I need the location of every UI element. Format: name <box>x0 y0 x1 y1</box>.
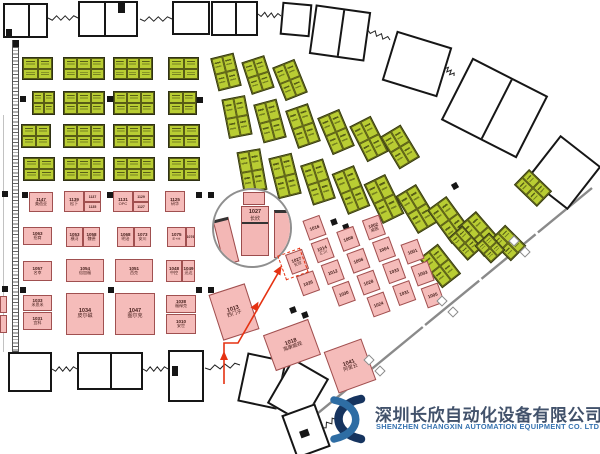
green-booth-block <box>210 53 242 92</box>
green-booth-cell <box>64 58 77 69</box>
pillar <box>2 191 8 197</box>
pillar <box>289 306 297 314</box>
green-booth-cell <box>169 158 184 169</box>
green-booth-cell <box>183 103 197 114</box>
green-booth-cell <box>141 92 154 103</box>
room-inner-wall <box>337 10 345 56</box>
booth-number: 1033 <box>389 267 400 275</box>
company-logo: 深圳长欣自动化设备有限公司 SHENZHEN CHANGXIN AUTOMATI… <box>322 392 600 454</box>
pillar <box>451 182 459 190</box>
green-booth-cell <box>77 136 90 147</box>
green-booth-cell <box>23 58 38 69</box>
green-booth-cell <box>77 92 90 103</box>
green-booth-cell <box>64 169 77 180</box>
green-booth-block <box>268 153 301 200</box>
green-booth-cell <box>91 69 104 80</box>
green-booth-cell <box>91 58 104 69</box>
magnified-neighbor-booth <box>213 217 240 266</box>
magnified-booth-divider <box>242 222 268 224</box>
green-booth-cell <box>169 103 183 114</box>
green-booth-cell <box>91 158 104 169</box>
green-booth-block <box>253 99 287 144</box>
exhibition-floorplan: 深圳长欣自动化设备有限公司 SHENZHEN CHANGXIN AUTOMATI… <box>0 0 600 454</box>
green-booth-block <box>285 103 321 149</box>
pink-booth: 1008 <box>336 226 360 252</box>
pink-booth: 1053横河 <box>66 227 83 247</box>
pink-booth: 1028 <box>356 270 380 296</box>
green-booth-cell <box>141 136 154 147</box>
room-inner-wall <box>481 79 513 139</box>
green-booth-cell <box>127 103 140 114</box>
pink-booth: 1058魏德 <box>83 227 100 247</box>
pink-booth: 1057名幸 <box>23 261 52 281</box>
green-booth-cell <box>36 136 50 147</box>
green-booth-cell <box>127 125 140 136</box>
barrier-diamond-marker <box>447 306 458 317</box>
green-booth-cell <box>114 158 127 169</box>
green-booth-block <box>317 109 355 155</box>
green-booth-cell <box>127 136 140 147</box>
green-booth-cell <box>127 169 140 180</box>
pink-booth: 1076 <box>186 227 195 247</box>
green-booth-cell <box>24 169 39 180</box>
green-booth-cell <box>139 69 152 80</box>
green-booth-cell <box>114 125 127 136</box>
perimeter-room <box>280 2 313 37</box>
booth-number: 1076 <box>187 235 195 239</box>
green-booth-block <box>23 157 55 181</box>
room-detail <box>118 3 125 13</box>
green-booth-block <box>63 124 105 148</box>
barrier-diamond-marker <box>374 365 385 376</box>
green-booth-cell <box>141 125 154 136</box>
green-booth-block <box>168 157 200 181</box>
green-booth-cell <box>91 125 104 136</box>
pink-booth: 1038福禄克 <box>166 295 196 313</box>
perimeter-room <box>382 31 453 98</box>
magnified-small-booth <box>243 192 265 205</box>
green-booth-cell <box>22 136 36 147</box>
green-booth-cell <box>184 58 199 69</box>
green-booth-cell <box>64 136 77 147</box>
green-booth-cell <box>23 69 38 80</box>
pillar <box>301 311 309 319</box>
green-booth-cell <box>64 92 77 103</box>
booth-number: 1030 <box>338 290 349 298</box>
expansion-joint-zigzag <box>205 363 240 370</box>
green-booth-cell <box>64 158 77 169</box>
perimeter-room <box>211 1 258 36</box>
pink-booth: 1051西克 <box>115 259 153 282</box>
green-booth-cell <box>184 158 199 169</box>
perimeter-room <box>78 1 138 37</box>
booth-number: 1024 <box>373 300 384 308</box>
pillar <box>330 218 338 226</box>
booth-name: 招商 <box>34 236 42 241</box>
booth-name: 汇川 <box>319 249 328 256</box>
green-booth-cell <box>114 136 127 147</box>
green-booth-block <box>168 57 199 80</box>
pink-booth: 1075E+H <box>167 227 186 247</box>
expansion-joint-zigzag <box>368 30 390 40</box>
perimeter-room <box>441 58 549 159</box>
perimeter-room <box>8 352 52 392</box>
pink-booth: 1016 <box>302 215 326 241</box>
pink-booth: 1147美蓓亚 <box>29 192 53 212</box>
expansion-joint-zigzag <box>52 367 77 371</box>
booth-name: 倍加福 <box>79 271 91 276</box>
green-booth-block <box>113 57 153 80</box>
pink-booth <box>0 296 7 313</box>
booth-name: 迅达 <box>185 271 193 276</box>
perimeter-room <box>77 352 143 390</box>
green-booth-cell <box>64 103 77 114</box>
green-booth-cell <box>33 103 44 114</box>
booth-number: 1129 <box>137 195 145 199</box>
green-booth-block <box>22 57 53 80</box>
magnified-highlight-booth: 1027长欣 <box>241 206 269 256</box>
booth-name: 西门子 <box>227 310 243 320</box>
booth-number: 1008 <box>343 235 354 243</box>
room-inner-wall <box>110 354 112 388</box>
green-booth-cell <box>39 169 54 180</box>
green-booth-cell <box>169 92 183 103</box>
booth-number: 1004 <box>378 245 389 253</box>
green-booth-cell <box>91 92 104 103</box>
booth-name: 威图 <box>370 226 379 233</box>
green-booth-cell <box>169 136 184 147</box>
green-booth-cell <box>169 69 184 80</box>
green-booth-block <box>241 55 274 95</box>
booth-name: 松下 <box>70 202 78 207</box>
green-booth-cell <box>77 69 90 80</box>
green-booth-cell <box>77 58 90 69</box>
booth-number: 1016 <box>309 224 320 232</box>
pillar <box>20 287 26 293</box>
pink-booth: 1048中控 <box>166 260 182 282</box>
pillar <box>108 287 114 293</box>
perimeter-room <box>172 1 210 35</box>
green-booth-cell <box>249 149 263 171</box>
pillar <box>196 287 202 293</box>
booth-name: 明治 <box>122 237 130 242</box>
pink-booth: 1127 <box>133 202 149 212</box>
pink-booth: 1012 <box>321 259 345 285</box>
pink-booth: 1031宜科 <box>23 312 52 330</box>
booth-number: 1001 <box>407 248 418 256</box>
pillar <box>197 97 203 103</box>
expansion-joint-zigzag <box>140 17 172 21</box>
green-booth-block <box>63 91 105 115</box>
green-booth-block <box>380 125 420 170</box>
booth-number: 1006 <box>353 257 364 265</box>
pillar <box>20 96 26 102</box>
green-booth-cell <box>36 125 50 136</box>
booth-name: 美蓓亚 <box>35 202 47 207</box>
green-booth-cell <box>114 92 127 103</box>
room-detail <box>172 366 178 376</box>
pillar <box>22 192 28 198</box>
green-booth-cell <box>64 69 77 80</box>
booth-name: 横河 <box>71 237 79 242</box>
green-booth-cell <box>233 96 247 117</box>
pink-booth: 1047图尔克 <box>115 293 155 335</box>
green-booth-block <box>168 91 197 115</box>
green-booth-cell <box>169 58 184 69</box>
pink-booth: 1030 <box>332 281 356 307</box>
green-booth-cell <box>77 103 90 114</box>
room-inner-wall <box>28 5 30 36</box>
company-name-en: SHENZHEN CHANGXIN AUTOMATION EQUIPMENT C… <box>376 422 599 431</box>
green-booth-cell <box>77 158 90 169</box>
green-booth-block <box>237 148 268 194</box>
booth-number: 1026 <box>303 279 314 287</box>
green-booth-cell <box>183 92 197 103</box>
green-booth-cell <box>141 169 154 180</box>
pink-booth: 1004 <box>372 236 396 262</box>
route-arrowhead <box>220 351 228 360</box>
pillar <box>208 287 214 293</box>
pillar <box>208 192 214 198</box>
booth-name: 安川 <box>139 237 147 242</box>
pink-booth: 1006 <box>346 248 370 274</box>
green-booth-cell <box>64 125 77 136</box>
green-booth-cell <box>24 158 39 169</box>
green-booth-cell <box>91 169 104 180</box>
green-booth-cell <box>91 103 104 114</box>
pink-booth: 1049迅达 <box>182 260 195 282</box>
pink-booth: 1014汇川 <box>311 237 335 263</box>
booth-name: 图尔克 <box>127 314 142 320</box>
booth-name: 研华 <box>171 202 179 207</box>
green-booth-block <box>332 165 371 215</box>
green-booth-cell <box>141 103 154 114</box>
booth-name: 魏德 <box>88 237 96 242</box>
perimeter-room <box>168 350 204 402</box>
green-booth-cell <box>169 125 184 136</box>
green-booth-cell <box>127 92 140 103</box>
booth-name: 宜科 <box>34 321 42 326</box>
green-booth-cell <box>44 92 55 103</box>
room-inner-wall <box>235 3 237 34</box>
booth-name: 西克 <box>130 271 138 276</box>
green-booth-cell <box>114 58 127 69</box>
booth-number: 1005 <box>427 291 438 299</box>
booth-number: 1127 <box>137 205 145 209</box>
room-detail <box>6 29 12 37</box>
pink-booth: 1068明治 <box>117 227 134 247</box>
perimeter-room <box>309 4 371 61</box>
expansion-joint-zigzag <box>258 12 281 17</box>
green-booth-cell <box>184 136 199 147</box>
booth-number: 1012 <box>327 268 338 276</box>
green-booth-block <box>168 124 200 148</box>
pillar <box>2 286 8 292</box>
pink-booth: 1034皮尔磁 <box>66 293 104 335</box>
changxin-logo-icon <box>322 392 372 446</box>
pink-booth: 1033米思米 <box>23 295 52 311</box>
booth-number: 1137 <box>89 195 97 199</box>
pink-booth: 1135 <box>84 202 101 212</box>
booth-name: 福禄克 <box>175 304 187 309</box>
green-booth-cell <box>22 125 36 136</box>
pink-booth: 1013西门子 <box>209 283 260 340</box>
green-booth-cell <box>114 169 127 180</box>
booth-number: 1003 <box>417 269 428 277</box>
green-booth-cell <box>184 169 199 180</box>
escalator-strip <box>12 40 19 352</box>
green-booth-cell <box>91 136 104 147</box>
expansion-joint-zigzag <box>143 367 168 371</box>
green-booth-block <box>113 91 155 115</box>
green-booth-block <box>272 59 308 101</box>
pink-booth: 1125研华 <box>165 191 185 212</box>
green-booth-block <box>113 124 155 148</box>
green-booth-cell <box>184 125 199 136</box>
green-booth-cell <box>169 169 184 180</box>
pink-booth: 1129 <box>133 191 149 202</box>
pink-booth: 1010安世 <box>166 314 196 334</box>
pink-booth: 1073安川 <box>134 227 151 247</box>
green-booth-cell <box>184 69 199 80</box>
green-booth-cell <box>33 92 44 103</box>
room-detail <box>13 40 19 47</box>
green-booth-block <box>221 95 252 139</box>
pillar <box>196 192 202 198</box>
pink-booth: 1024 <box>367 292 391 318</box>
green-booth-block <box>113 157 155 181</box>
booth-number: 1031 <box>399 289 410 297</box>
green-booth-block <box>300 158 336 205</box>
green-booth-cell <box>39 158 54 169</box>
pink-booth: 1131OPC <box>113 191 133 212</box>
green-booth-cell <box>38 69 53 80</box>
green-booth-cell <box>114 69 127 80</box>
booth-number: 1028 <box>363 279 374 287</box>
green-booth-cell <box>127 58 140 69</box>
booth-name: 皮尔磁 <box>77 314 92 320</box>
green-booth-block <box>63 57 105 80</box>
magnified-booth-name: 长欣 <box>242 215 268 222</box>
pink-booth: 1031 <box>392 280 416 306</box>
green-booth-cell <box>77 125 90 136</box>
green-booth-block <box>63 157 105 181</box>
pink-booth: 1137 <box>84 191 101 202</box>
booth-name: E+H <box>173 237 181 242</box>
booth-name: 名幸 <box>34 271 42 276</box>
green-booth-cell <box>237 115 251 136</box>
pink-booth: 1139松下 <box>64 191 84 212</box>
green-booth-cell <box>127 69 140 80</box>
pink-booth: 1054倍加福 <box>66 259 104 282</box>
booth-name: 米思米 <box>32 303 44 308</box>
pink-booth <box>0 315 7 333</box>
pink-booth: 1063招商 <box>23 227 52 245</box>
booth-name: OPC <box>119 202 128 207</box>
booth-number: 1135 <box>89 205 97 209</box>
green-booth-block <box>21 124 51 148</box>
room-inner-wall <box>104 3 106 35</box>
pink-booth: 1033 <box>382 258 406 284</box>
green-booth-cell <box>44 103 55 114</box>
green-booth-cell <box>114 103 127 114</box>
green-booth-cell <box>141 158 154 169</box>
expansion-joint-zigzag <box>48 16 78 20</box>
green-booth-block <box>32 91 55 115</box>
green-booth-cell <box>77 169 90 180</box>
green-booth-cell <box>38 58 53 69</box>
green-booth-cell <box>127 158 140 169</box>
booth-name: 安世 <box>177 324 185 329</box>
green-booth-cell <box>139 58 152 69</box>
booth-name: 中控 <box>170 271 178 276</box>
